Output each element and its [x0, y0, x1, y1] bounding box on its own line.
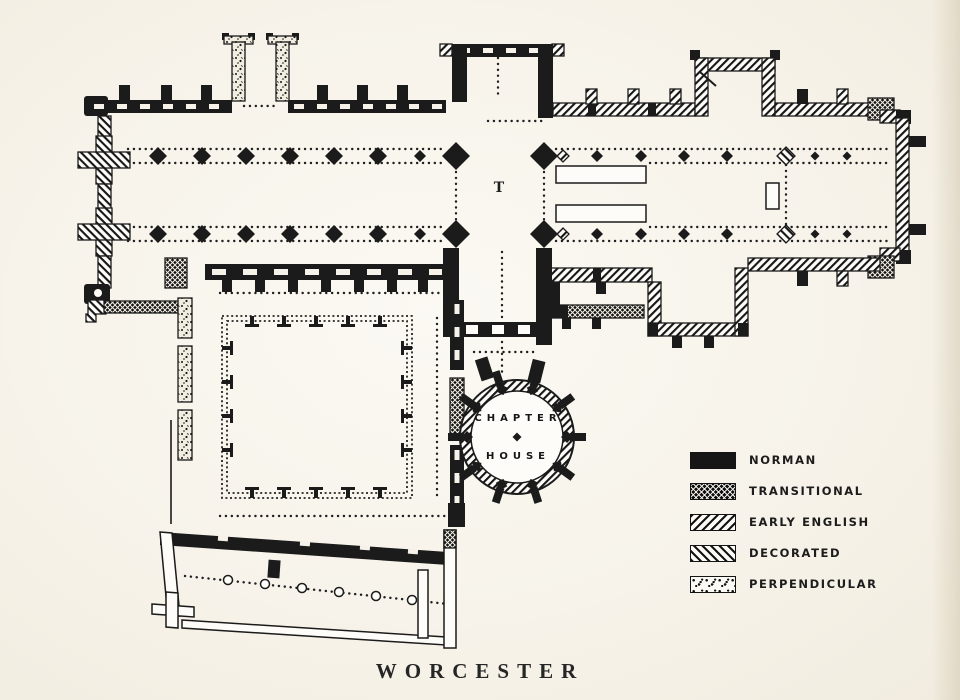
cloister [86, 258, 465, 527]
chapter-house [448, 370, 586, 505]
slype-passage-wall [548, 305, 644, 329]
legend-item-perpendicular: PERPENDICULAR [690, 575, 878, 593]
chapter-house-label-line1: CHAPTER [462, 413, 574, 424]
legend-label-early-english: EARLY ENGLISH [749, 515, 870, 529]
chapter-house-label-line2: HOUSE [467, 451, 569, 462]
plan-title: WORCESTER [0, 659, 960, 684]
legend-swatch-norman [690, 452, 736, 469]
legend-item-transitional: TRANSITIONAL [690, 482, 878, 500]
scan-edge-shadow [926, 0, 960, 700]
north-east-transept [690, 50, 780, 116]
north-transept [440, 44, 564, 118]
tower-label: T [488, 180, 510, 196]
refectory [152, 530, 456, 648]
legend-label-transitional: TRANSITIONAL [749, 484, 864, 498]
west-front [78, 96, 130, 304]
legend: NORMAN TRANSITIONAL EARLY ENGLISH DECORA… [690, 451, 878, 606]
choir-north-wall [553, 89, 695, 116]
legend-label-norman: NORMAN [749, 453, 817, 467]
legend-label-decorated: DECORATED [749, 546, 841, 560]
south-east-transept [648, 268, 748, 348]
choir-stalls [556, 166, 779, 222]
legend-swatch-decorated [690, 545, 736, 562]
legend-item-early-english: EARLY ENGLISH [690, 513, 878, 531]
legend-item-decorated: DECORATED [690, 544, 878, 562]
legend-item-norman: NORMAN [690, 451, 878, 469]
legend-swatch-early-english [690, 514, 736, 531]
south-choir-aisle [548, 268, 652, 308]
scanned-plan-page: T CHAPTER HOUSE NORMAN TRANSITIONAL EARL… [0, 0, 960, 700]
legend-swatch-perpendicular [690, 576, 736, 593]
garth-buttresses [222, 316, 412, 498]
legend-swatch-transitional [690, 483, 736, 500]
north-porch [222, 33, 299, 101]
nave-north-wall [86, 85, 446, 113]
legend-label-perpendicular: PERPENDICULAR [749, 577, 878, 591]
